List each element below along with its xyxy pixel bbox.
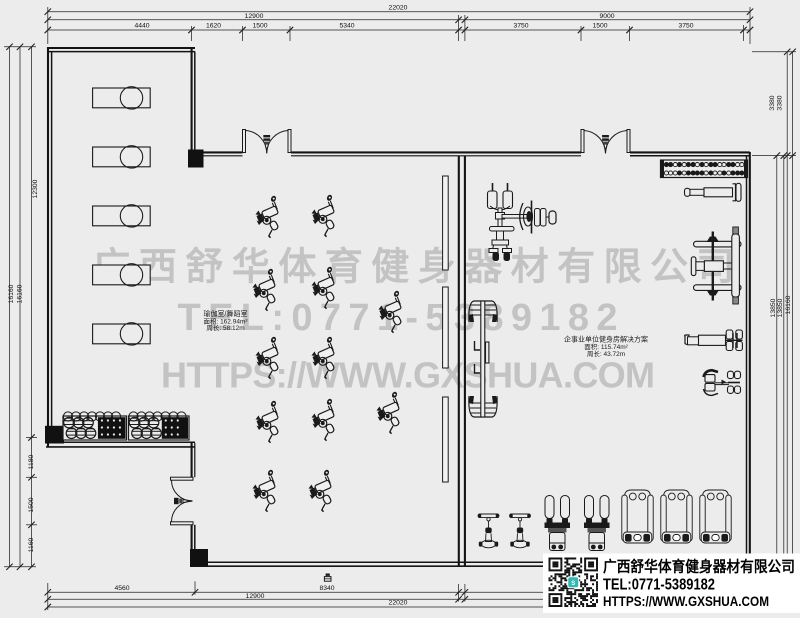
svg-text:1500: 1500: [28, 497, 35, 512]
svg-text:企事业单位健身房解决方案: 企事业单位健身房解决方案: [564, 335, 648, 344]
svg-text:3750: 3750: [678, 23, 693, 30]
svg-text:22020: 22020: [389, 600, 408, 607]
svg-text:22020: 22020: [389, 5, 408, 12]
svg-text:TEL:0771-5389182: TEL:0771-5389182: [603, 576, 715, 593]
svg-text:3380: 3380: [769, 95, 776, 110]
svg-text:9000: 9000: [599, 13, 614, 20]
svg-text:1620: 1620: [206, 23, 221, 30]
svg-text:1160: 1160: [28, 537, 35, 552]
svg-text:周长: 58.12m: 周长: 58.12m: [206, 323, 244, 332]
svg-text:16160: 16160: [8, 284, 15, 303]
svg-text:周长: 43.72m: 周长: 43.72m: [587, 349, 625, 358]
svg-text:12300: 12300: [32, 179, 39, 198]
svg-text:16160: 16160: [785, 295, 792, 314]
svg-text:8340: 8340: [319, 585, 334, 592]
svg-text:13850: 13850: [777, 298, 784, 317]
svg-text:16160: 16160: [16, 284, 23, 303]
svg-text:4560: 4560: [114, 585, 129, 592]
svg-text:3750: 3750: [513, 23, 528, 30]
svg-text:3380: 3380: [776, 95, 783, 110]
svg-text:12900: 12900: [246, 593, 265, 600]
svg-text:HTTPS://WWW.GXSHUA.COM: HTTPS://WWW.GXSHUA.COM: [603, 593, 769, 609]
svg-text:面积: 115.74m²: 面积: 115.74m²: [584, 342, 628, 351]
svg-text:12900: 12900: [245, 13, 264, 20]
svg-text:1500: 1500: [592, 23, 607, 30]
svg-text:HTTPS://WWW.GXSHUA.COM: HTTPS://WWW.GXSHUA.COM: [161, 355, 655, 396]
svg-text:13850: 13850: [770, 298, 777, 317]
svg-text:瑜伽室/舞蹈室: 瑜伽室/舞蹈室: [204, 309, 248, 318]
svg-text:广西舒华体育健身器材有限公司: 广西舒华体育健身器材有限公司: [603, 558, 795, 576]
svg-text:1180: 1180: [28, 454, 35, 469]
svg-text:S: S: [571, 581, 575, 587]
svg-text:4440: 4440: [134, 23, 149, 30]
svg-text:5340: 5340: [339, 23, 354, 30]
svg-text:1500: 1500: [252, 23, 267, 30]
